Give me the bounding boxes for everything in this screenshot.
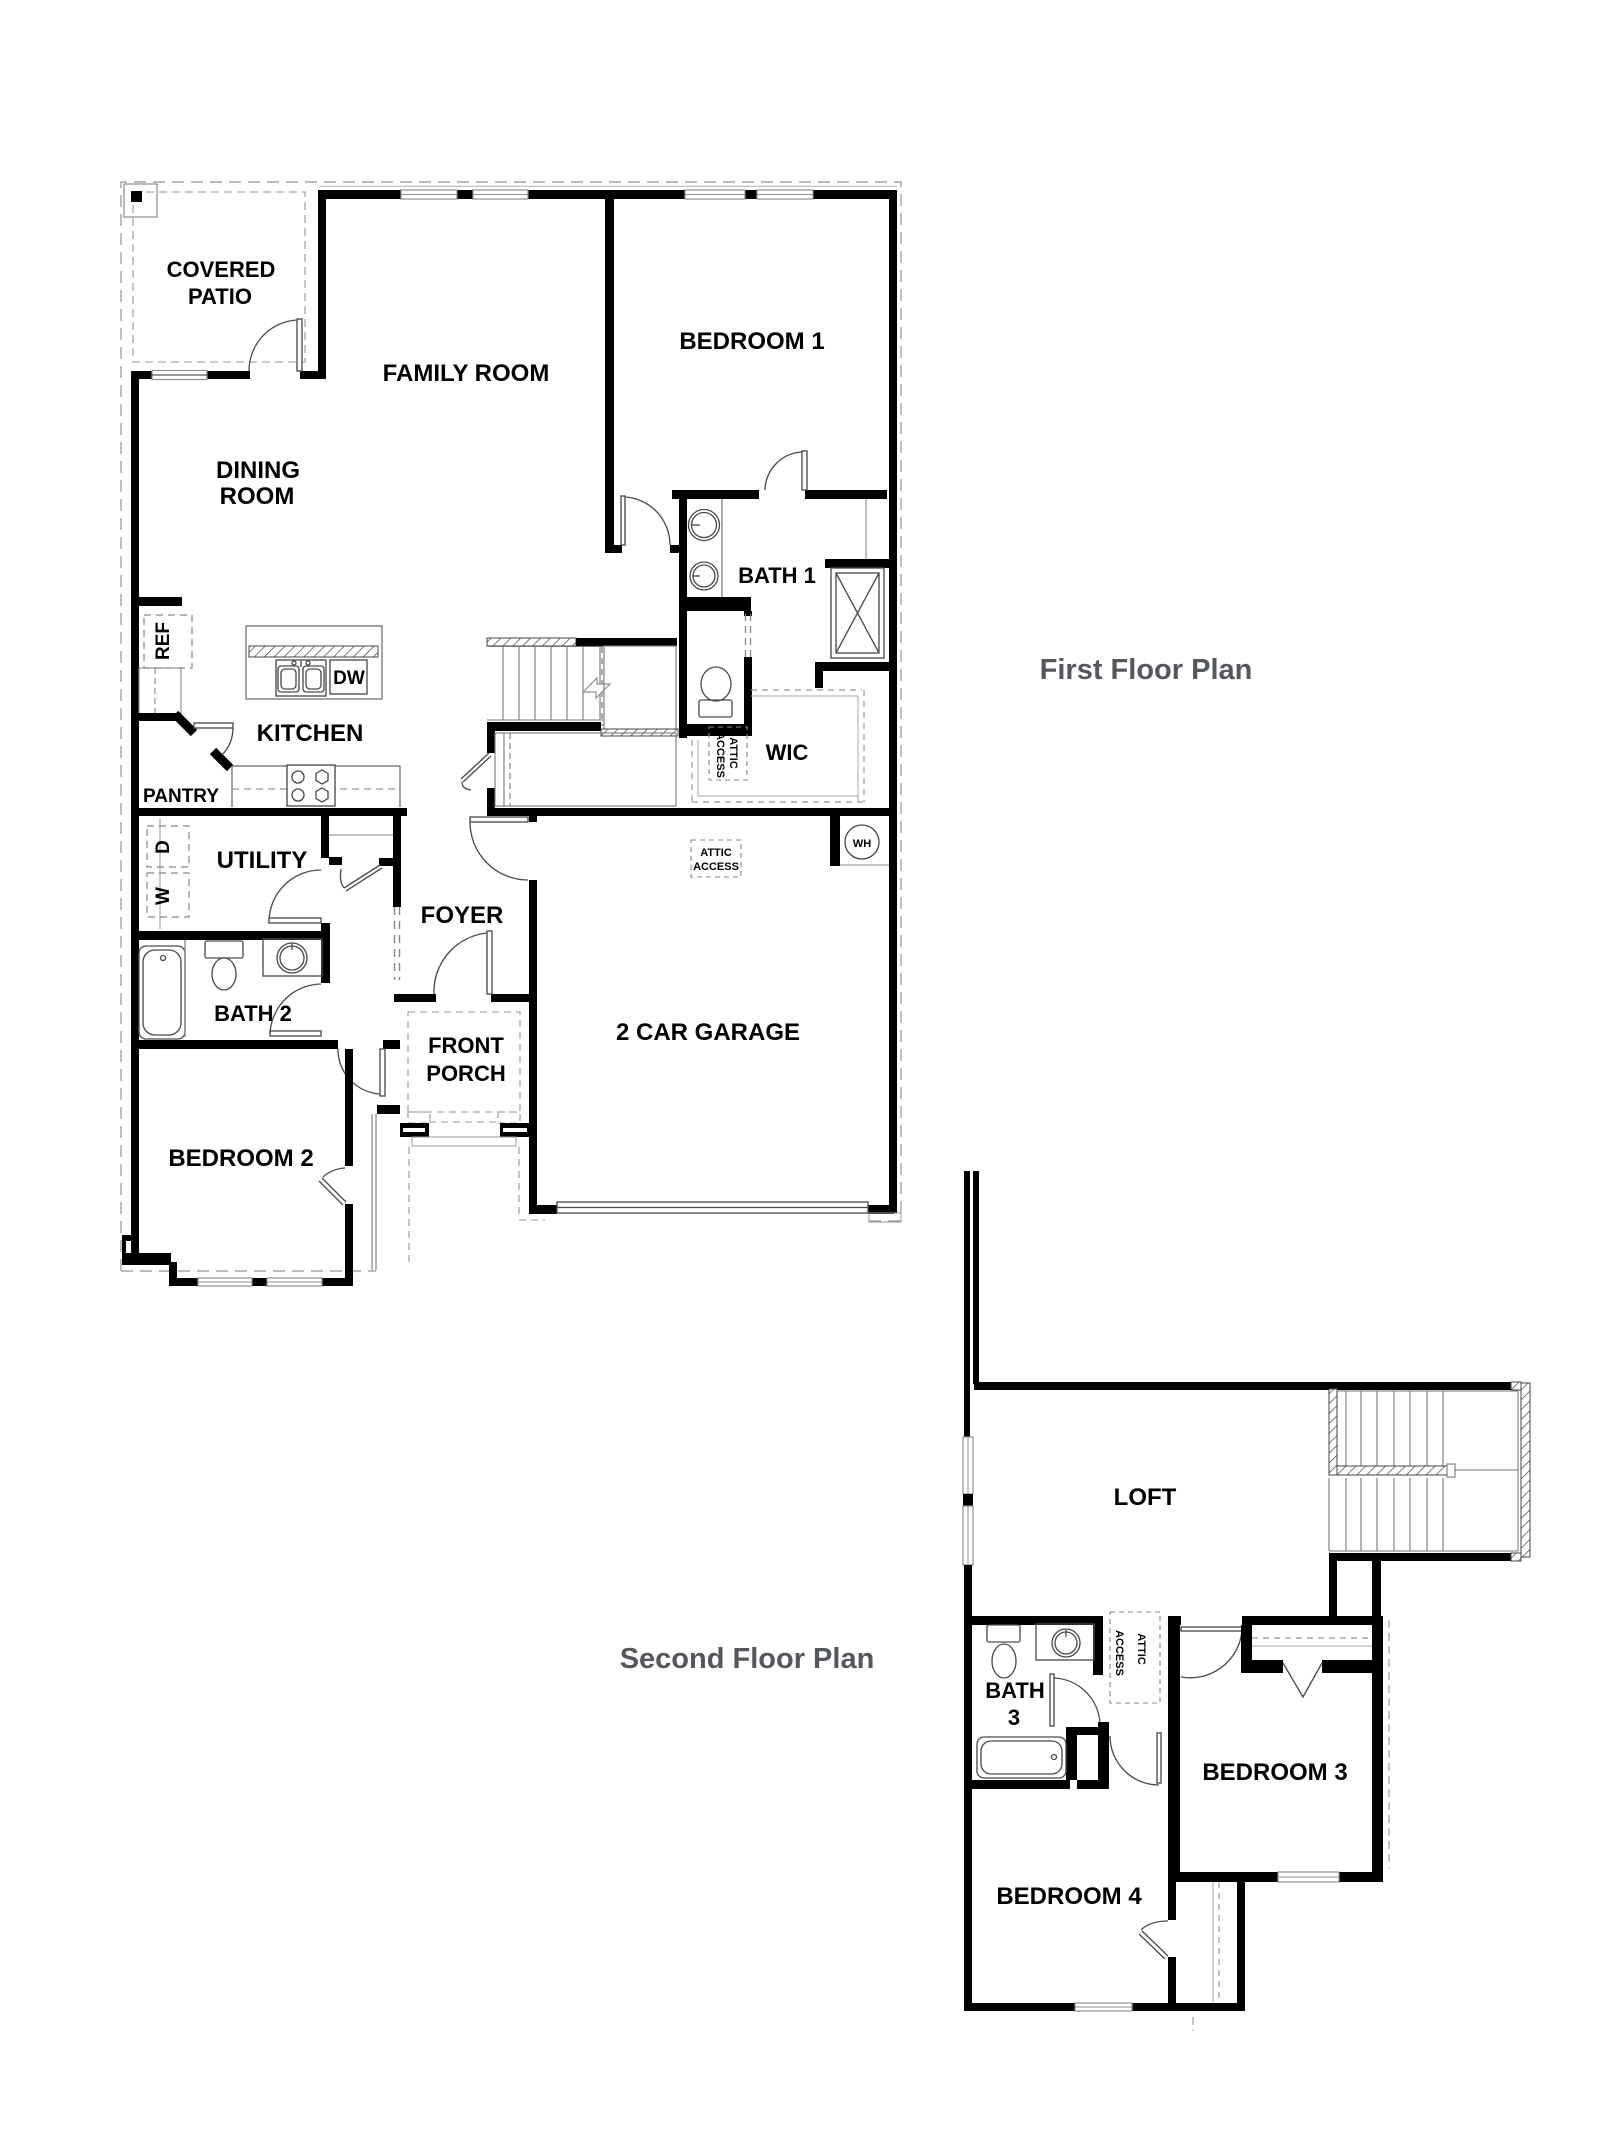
svg-text:BEDROOM 2: BEDROOM 2 bbox=[168, 1145, 313, 1172]
svg-text:FRONT: FRONT bbox=[428, 1033, 504, 1058]
svg-text:REF: REF bbox=[153, 622, 174, 660]
svg-text:BATH 2: BATH 2 bbox=[214, 1001, 292, 1026]
svg-text:PATIO: PATIO bbox=[188, 284, 252, 309]
svg-text:COVERED: COVERED bbox=[167, 257, 276, 282]
svg-text:Second Floor Plan: Second Floor Plan bbox=[620, 1643, 875, 1675]
svg-text:WIC: WIC bbox=[766, 740, 809, 765]
svg-text:ROOM: ROOM bbox=[220, 483, 295, 510]
svg-text:PORCH: PORCH bbox=[426, 1061, 505, 1086]
svg-text:First Floor Plan: First Floor Plan bbox=[1040, 654, 1253, 686]
svg-text:ATTIC: ATTIC bbox=[700, 847, 732, 859]
svg-text:DW: DW bbox=[333, 668, 365, 689]
svg-text:ACCESS: ACCESS bbox=[1113, 1630, 1125, 1676]
svg-text:WH: WH bbox=[853, 838, 871, 850]
svg-text:BEDROOM 4: BEDROOM 4 bbox=[996, 1883, 1142, 1910]
svg-text:ACCESS: ACCESS bbox=[693, 861, 739, 873]
svg-text:UTILITY: UTILITY bbox=[217, 847, 308, 874]
svg-text:FOYER: FOYER bbox=[421, 902, 504, 929]
svg-text:FAMILY ROOM: FAMILY ROOM bbox=[383, 360, 550, 387]
svg-text:W: W bbox=[153, 887, 174, 905]
svg-text:BATH 1: BATH 1 bbox=[738, 563, 816, 588]
svg-text:LOFT: LOFT bbox=[1114, 1484, 1177, 1511]
svg-text:ACCESS: ACCESS bbox=[714, 732, 726, 778]
svg-text:DINING: DINING bbox=[216, 457, 300, 484]
svg-text:3: 3 bbox=[1008, 1705, 1020, 1730]
svg-text:D: D bbox=[153, 840, 174, 854]
svg-text:KITCHEN: KITCHEN bbox=[257, 720, 364, 747]
svg-text:BATH: BATH bbox=[985, 1678, 1044, 1703]
svg-text:BEDROOM 3: BEDROOM 3 bbox=[1202, 1759, 1347, 1786]
svg-text:PANTRY: PANTRY bbox=[143, 786, 219, 807]
svg-text:BEDROOM 1: BEDROOM 1 bbox=[679, 328, 824, 355]
svg-text:2 CAR GARAGE: 2 CAR GARAGE bbox=[616, 1019, 800, 1046]
svg-text:ATTIC: ATTIC bbox=[727, 737, 739, 769]
svg-text:ATTIC: ATTIC bbox=[1135, 1633, 1147, 1665]
